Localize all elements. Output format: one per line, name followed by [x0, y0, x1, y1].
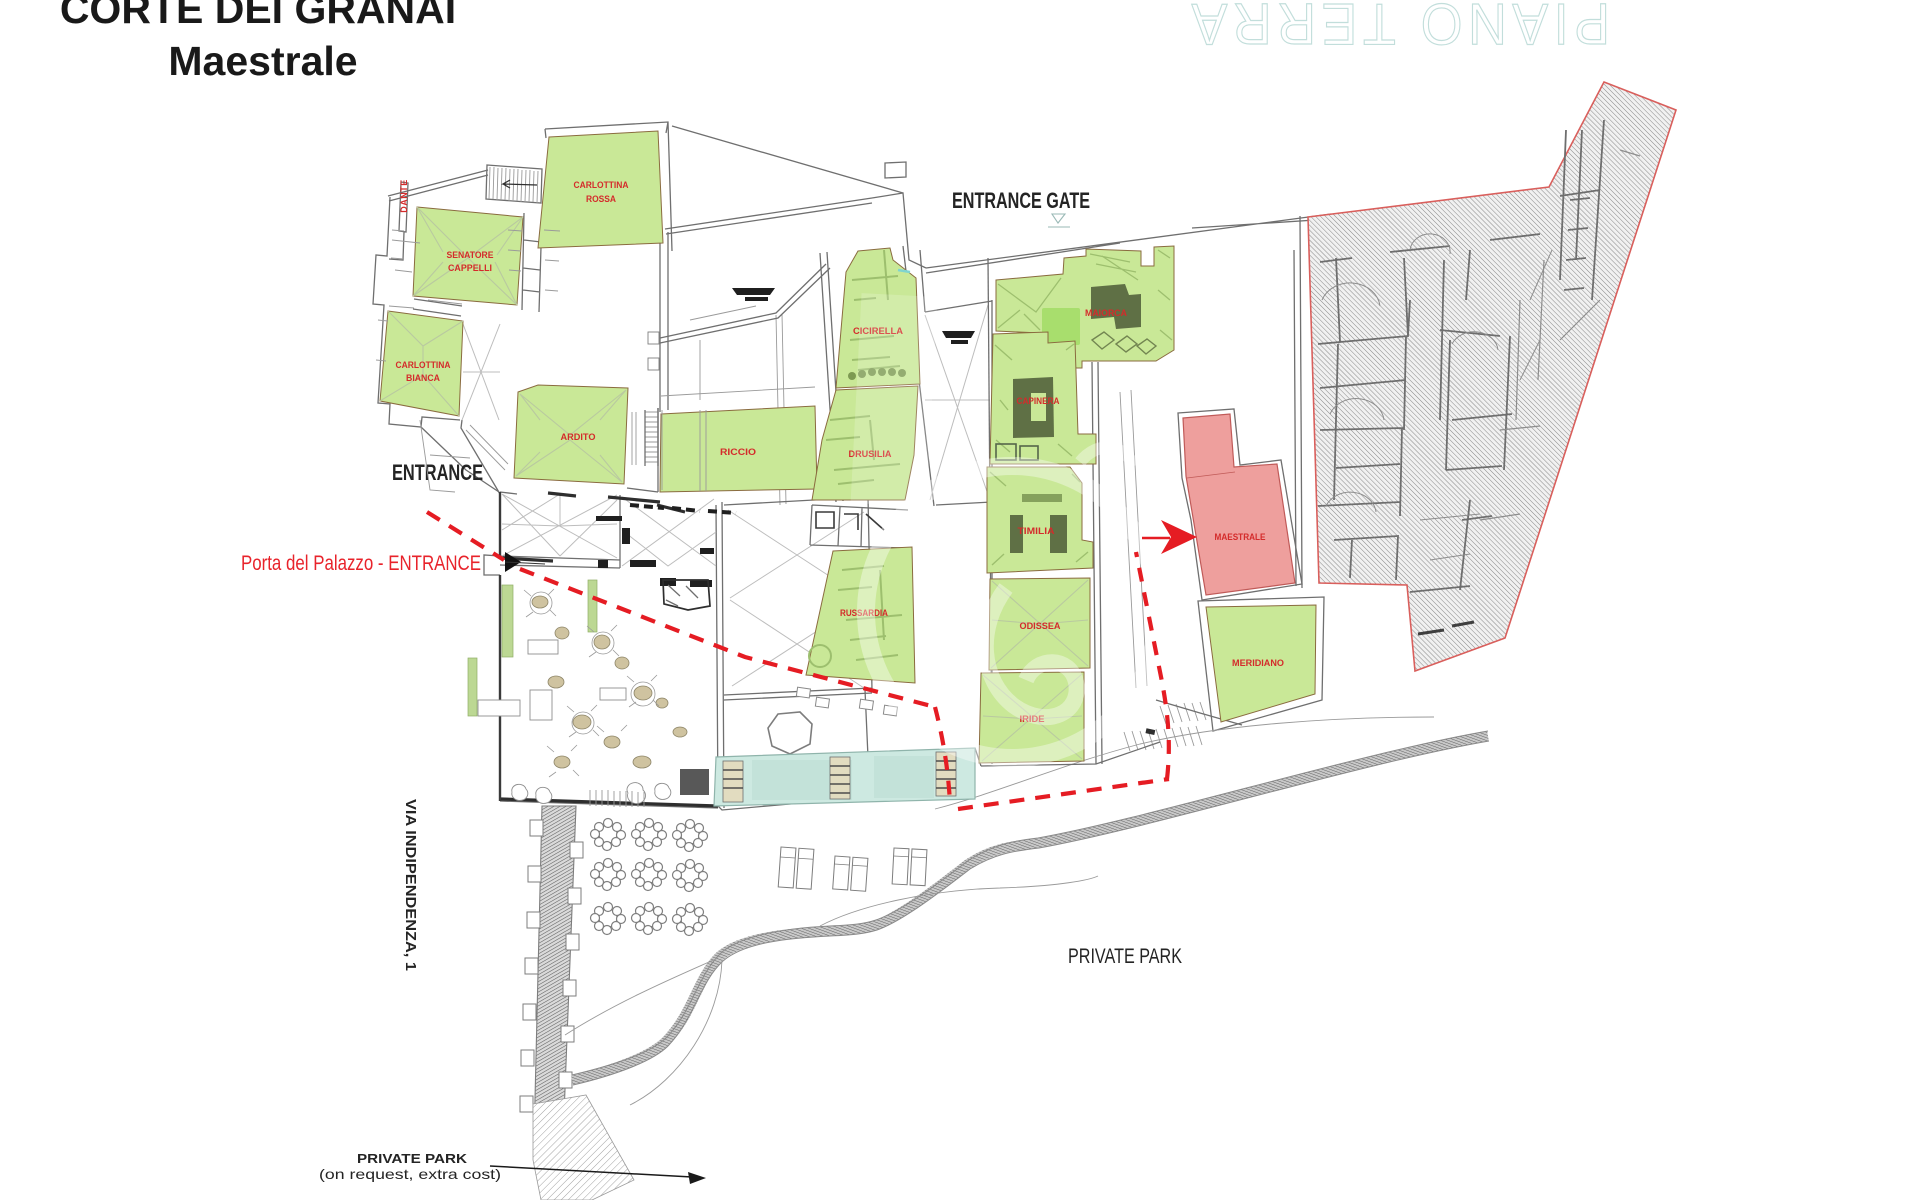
svg-text:MAIORCA: MAIORCA: [1085, 308, 1127, 318]
svg-text:ARDITO: ARDITO: [561, 432, 596, 442]
svg-text:MAESTRALE: MAESTRALE: [1215, 532, 1266, 542]
svg-text:ENTRANCE GATE: ENTRANCE GATE: [952, 188, 1090, 213]
svg-text:ROSSA: ROSSA: [586, 194, 616, 204]
svg-text:PIANO TERRA: PIANO TERRA: [1186, 0, 1610, 56]
svg-text:(on request, extra cost): (on request, extra cost): [319, 1166, 501, 1182]
svg-text:CAPINERA: CAPINERA: [1017, 396, 1060, 406]
svg-text:CARLOTTINA: CARLOTTINA: [574, 180, 629, 190]
svg-text:PRIVATE PARK: PRIVATE PARK: [1068, 945, 1182, 968]
svg-text:RICCIO: RICCIO: [720, 447, 756, 457]
svg-text:ENTRANCE: ENTRANCE: [392, 460, 483, 485]
svg-text:PRIVATE PARK: PRIVATE PARK: [357, 1151, 468, 1166]
svg-text:Porta del Palazzo - ENTRANCE: Porta del Palazzo - ENTRANCE: [241, 552, 481, 575]
svg-text:DANTE: DANTE: [399, 179, 409, 213]
svg-text:CORTE DEI GRANAI: CORTE DEI GRANAI: [60, 0, 456, 32]
svg-text:BIANCA: BIANCA: [406, 373, 440, 383]
svg-text:SENATORE: SENATORE: [447, 250, 494, 260]
svg-text:Maestrale: Maestrale: [168, 38, 357, 84]
svg-text:CAPPELLI: CAPPELLI: [448, 263, 492, 273]
svg-text:VIA INDIPENDENZA, 1: VIA INDIPENDENZA, 1: [402, 799, 419, 971]
svg-text:MERIDIANO: MERIDIANO: [1232, 658, 1284, 668]
svg-text:CARLOTTINA: CARLOTTINA: [396, 360, 451, 370]
svg-text:TIMILIA: TIMILIA: [1018, 526, 1056, 536]
svg-text:ODISSEA: ODISSEA: [1020, 621, 1061, 631]
